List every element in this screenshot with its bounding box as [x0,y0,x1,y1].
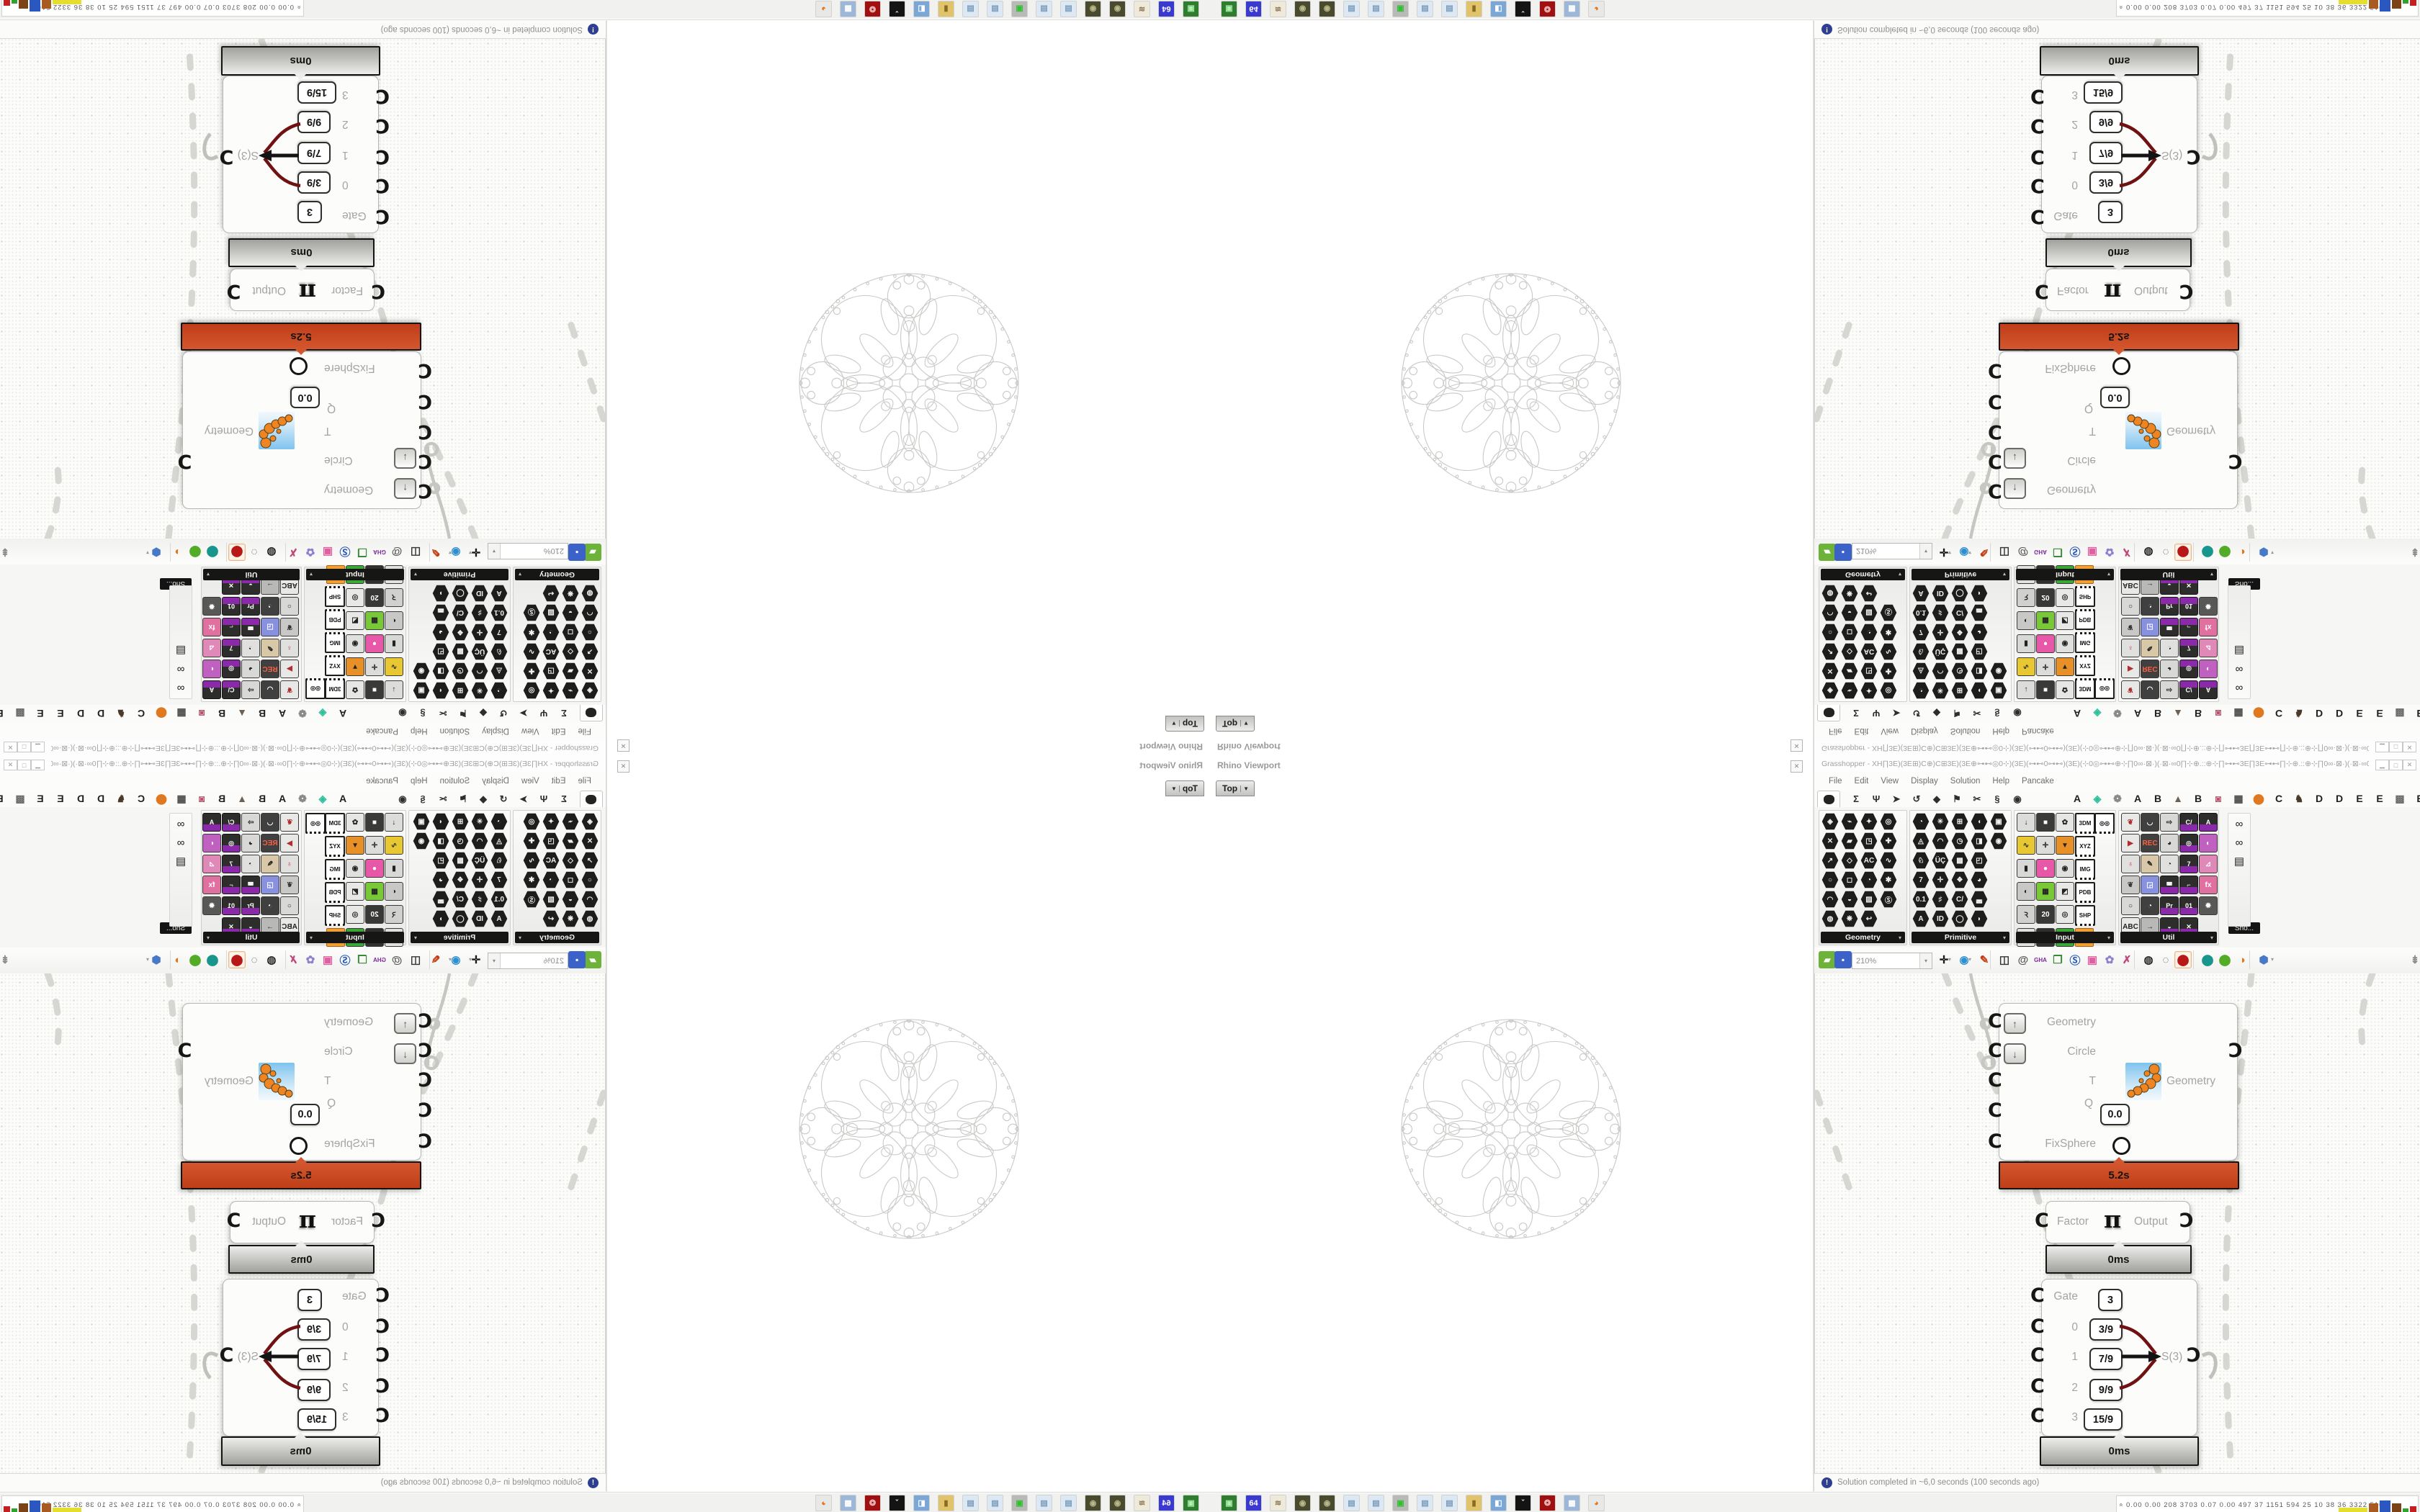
component-icon-geometry-0[interactable]: ◈ [1821,813,1839,830]
component-icon-util-23[interactable]: 01 [222,896,241,915]
selected-preview-button[interactable]: ⬢ [148,951,165,968]
component-icon-input-20[interactable]: Ꝛ [385,905,403,924]
system-monitor-widget[interactable]: « 0.00 0.00 208 3703 0.07 0.00 497 37 11… [1,1495,304,1512]
category-tab-icon-4[interactable]: ◆ [1928,706,1945,720]
component-icon-input-1[interactable]: ■ [365,680,384,699]
input-grip[interactable]: C [377,1317,390,1336]
output-grip[interactable]: Ɔ [2228,1041,2241,1061]
menu-item-view[interactable]: View [1881,726,1899,735]
input-grip[interactable]: C [2030,1377,2043,1396]
menu-item-display[interactable]: Display [482,777,509,786]
component-icon-geometry-17[interactable]: ◒ [562,891,579,908]
component-icon-primitive-3[interactable]: ◖ [432,813,449,830]
component-icon-geometry-2[interactable]: ✦ [1860,682,1878,699]
tab-params-selected[interactable] [580,791,603,808]
component-icon-primitive-22[interactable]: C/ [1951,604,1968,621]
component-icon-util-9[interactable]: ◐ [202,660,221,678]
node-canvas[interactable]: ↑ ↓ Geometry Circle T Q FixSphere [1814,973,2420,1473]
component-icon-geometry-21[interactable]: ❋ [1841,585,1858,602]
component-icon-primitive-27[interactable]: ◯ [452,910,469,927]
maximize-button[interactable]: □ [2389,742,2403,752]
component-icon-primitive-3[interactable]: ◖ [432,682,449,699]
component-icon-primitive-6[interactable]: ◠ [471,662,488,680]
plugin-tab-4[interactable]: B [253,706,272,721]
app-medallion[interactable]: ◉ [1319,1495,1335,1511]
component-icon-geometry-2[interactable]: ✦ [542,813,560,830]
component-icon-input-21[interactable]: 20 [2036,588,2055,607]
component-icon-input-8[interactable]: XYZ [325,836,345,857]
component-icon-input-4[interactable]: ◎◎ [2094,813,2115,834]
node-stream-gate[interactable]: Gate 3 0 3/9 1 7/9 2 9/9 3 15/9 [2041,1279,2197,1436]
component-icon-primitive-5[interactable]: ◬ [1912,832,1930,850]
component-icon-input-7[interactable]: ▼ [346,657,364,676]
plugin-tab-15[interactable]: E [31,791,50,806]
zoom-level-combo[interactable]: 210%▾ [1852,953,1932,969]
jump-wires-button[interactable]: ✗ [284,544,302,561]
component-icon-input-5[interactable]: ∿ [2017,836,2035,855]
component-icon-primitive-13[interactable]: ◰ [432,643,449,660]
component-icon-primitive-5[interactable]: ◬ [1912,662,1930,680]
component-icon-input-16[interactable]: ▦ [365,882,384,901]
fancy-wires-button[interactable]: ◑ [2233,544,2251,561]
chevron-down-icon[interactable]: ▼ [1240,721,1251,727]
component-icon-primitive-13[interactable]: ◰ [1971,852,1988,869]
component-icon-util-12[interactable]: ◔ [241,639,260,657]
component-icon-util-19[interactable]: fx [202,876,221,894]
component-icon-geometry-12[interactable]: ○ [581,871,599,888]
menu-item-help[interactable]: Help [411,777,428,786]
component-icon-geometry-7[interactable]: ✚ [523,832,540,850]
component-icon-input-23[interactable]: SHP [2075,586,2095,607]
component-icon-util-11[interactable]: ✎ [2141,855,2159,873]
component-icon-primitive-27[interactable]: ◯ [452,585,469,602]
component-icon-geometry-13[interactable]: ◻ [562,871,579,888]
app-flash-64[interactable]: 64 [1158,1,1175,17]
only-selected-preview-button[interactable]: ⬤ [204,544,221,561]
component-icon-util-6[interactable]: REC [261,660,279,678]
component-icon-geometry-4[interactable]: ✕ [581,662,599,680]
component-icon-primitive-25[interactable]: A [490,585,508,602]
preview-off-button[interactable]: ◍ [263,544,280,561]
component-icon-primitive-25[interactable]: A [490,910,508,927]
chevron-down-icon[interactable]: ▾ [146,549,149,556]
plugin-tab-12[interactable]: D [91,706,110,721]
component-icon-primitive-1[interactable]: ✳ [1932,682,1949,699]
component-icon-util-24[interactable]: ✹ [2199,896,2218,915]
input-grip[interactable]: C [1988,1101,2001,1120]
menu-item-help[interactable]: Help [411,726,428,735]
component-icon-geometry-15[interactable]: ✱ [523,624,540,641]
plugin-tab-9[interactable]: ⬤ [152,706,171,721]
node-pi-factor[interactable]: Factor π Output [2045,269,2190,311]
menu-item-edit[interactable]: Edit [1855,726,1869,735]
component-icon-input-8[interactable]: XYZ [2075,836,2095,857]
component-icon-primitive-1[interactable]: ✳ [1932,813,1949,830]
plugin-tab-1[interactable]: ◈ [313,791,332,806]
component-icon-geometry-5[interactable]: ▰ [1841,662,1858,680]
app-phone[interactable]: ▮ [1466,1,1482,17]
plugin-tab-9[interactable]: ⬤ [2249,706,2268,721]
menu-item-file[interactable]: File [1829,777,1842,786]
maximize-button[interactable]: □ [17,742,31,752]
component-icon-primitive-2[interactable]: ⊞ [1951,813,1968,830]
minimize-button[interactable]: ▁ [31,760,45,770]
app-phone[interactable]: ▮ [938,1,954,17]
component-icon-geometry-8[interactable]: ↗ [1821,643,1839,660]
category-tab-icon-2[interactable]: ➤ [515,706,532,720]
gate-row-value[interactable]: 7/9 [297,142,331,164]
gate-row-value[interactable]: 9/9 [297,1379,331,1401]
component-icon-primitive-12[interactable]: ▩ [452,643,469,660]
strip-icon-2[interactable]: ▤ [2234,855,2244,868]
app-notepad[interactable]: ▤ [962,1,979,17]
component-icon-primitive-16[interactable]: ✛ [471,624,488,641]
component-icon-input-8[interactable]: XYZ [2075,655,2095,676]
save-document-button[interactable]: ▪ [568,951,586,968]
gha-assembly-button[interactable]: GHA [371,544,388,561]
fancy-wires-button[interactable]: ◑ [169,951,187,968]
component-icon-primitive-5[interactable]: ◬ [490,832,508,850]
app-remote-desktop[interactable]: ▣ [1011,1,1028,17]
save-document-button[interactable]: ▪ [1834,544,1852,561]
maximize-button[interactable]: □ [17,760,31,770]
component-icon-input-6[interactable]: ✛ [365,657,384,676]
menu-item-solution[interactable]: Solution [1950,726,1981,735]
plugin-tab-14[interactable]: E [51,706,70,721]
group-label-bar[interactable]: Util▾ [2120,932,2217,943]
component-icon-input-7[interactable]: ▼ [2056,657,2074,676]
component-icon-primitive-20[interactable]: 0.1 [1912,891,1930,908]
menu-item-display[interactable]: Display [1911,726,1938,735]
component-icon-geometry-8[interactable]: ↗ [581,643,599,660]
component-icon-geometry-4[interactable]: ✕ [1821,832,1839,850]
component-icon-geometry-15[interactable]: ✱ [1880,871,1897,888]
group-label-bar[interactable]: Util▾ [203,932,300,943]
plugin-tab-12[interactable]: D [91,791,110,806]
obscure-components-button[interactable]: ◫ [407,951,424,968]
group-label-bar[interactable]: Primitive▾ [411,569,508,580]
strip-icon-0[interactable]: ∞ [177,681,185,694]
component-icon-util-15[interactable]: ❦ [2121,618,2140,636]
component-icon-primitive-2[interactable]: ⊞ [1951,682,1968,699]
output-grip[interactable]: Ɔ [2179,1211,2192,1230]
preview-wireframe-button[interactable]: ◌ [246,544,263,561]
component-icon-geometry-5[interactable]: ▰ [562,832,579,850]
component-icon-geometry-12[interactable]: ○ [581,624,599,641]
obscure-components-button[interactable]: ◫ [407,544,424,561]
component-icon-util-16[interactable]: ◲ [2141,618,2159,636]
plugin-tab-7[interactable]: ◙ [192,791,211,806]
app-remote-desktop[interactable]: ▣ [1392,1,1409,17]
component-icon-geometry-12[interactable]: ○ [1821,624,1839,641]
component-icon-util-4[interactable]: A [202,680,221,699]
node-stream-gate[interactable]: Gate 3 0 3/9 1 7/9 2 9/9 3 15/9 [223,1279,379,1436]
app-medallion[interactable]: ◉ [1109,1495,1126,1511]
component-icon-geometry-4[interactable]: ✕ [1821,662,1839,680]
component-icon-geometry-1[interactable]: ⌁ [562,813,579,830]
component-icon-geometry-15[interactable]: ✱ [523,871,540,888]
app-green-monitor[interactable]: ▣ [1183,1495,1199,1511]
component-icon-primitive-27[interactable]: ◯ [1951,585,1968,602]
category-tab-icon-5[interactable]: ⚑ [1948,706,1966,720]
menu-item-file[interactable]: File [578,726,591,735]
component-icon-input-0[interactable]: ↓ [2017,813,2035,832]
app-notepad[interactable]: ▤ [1441,1495,1458,1511]
component-icon-geometry-14[interactable]: ◔ [1860,871,1878,888]
component-icon-util-11[interactable]: ✎ [261,639,279,657]
component-icon-primitive-16[interactable]: ✛ [1932,871,1949,888]
component-icon-util-3[interactable]: C/ [2179,813,2198,832]
fixsphere-toggle[interactable] [290,357,308,375]
output-grip[interactable]: Ɔ [179,1041,192,1061]
component-icon-util-2[interactable]: ⇨ [241,813,260,832]
component-icon-geometry-5[interactable]: ▰ [1841,832,1858,850]
component-icon-primitive-0[interactable]: ◔ [1912,813,1930,830]
tab-params-selected[interactable] [1817,791,1840,808]
internalise-data-button[interactable]: @ [2015,544,2032,561]
component-icon-primitive-0[interactable]: ◔ [490,813,508,830]
component-icon-primitive-8[interactable]: ◨ [1971,662,1988,680]
category-tab-icon-4[interactable]: ◆ [1928,792,1945,806]
component-icon-input-5[interactable]: ∿ [385,836,403,855]
app-notepad[interactable]: ▤ [962,1495,979,1511]
cluster-package-button[interactable]: ▣ [319,544,336,561]
app-remote-desktop[interactable]: ▣ [1011,1495,1028,1511]
component-icon-geometry-15[interactable]: ✱ [1880,624,1897,641]
component-icon-primitive-11[interactable]: ÜÇ [1932,852,1949,869]
plugin-tab-10[interactable]: C [2269,791,2288,806]
component-icon-primitive-7[interactable]: ◷ [452,662,469,680]
component-icon-input-4[interactable]: ◎◎ [305,813,326,834]
plugin-tab-13[interactable]: D [2330,706,2349,721]
node-circle-pack[interactable]: ↑ ↓ Geometry Circle T Q FixSphere [1999,1003,2238,1161]
component-icon-geometry-3[interactable]: ◎ [523,813,540,830]
jump-wires-button[interactable]: ✗ [2118,544,2136,561]
component-icon-geometry-10[interactable]: AC [542,852,560,869]
component-icon-input-22[interactable]: ◎ [346,588,364,607]
maximize-button[interactable]: □ [2389,760,2403,770]
input-grip[interactable]: C [377,1346,390,1365]
category-tab-icon-7[interactable]: § [1989,792,2006,806]
component-icon-primitive-20[interactable]: 0.1 [490,604,508,621]
component-icon-geometry-22[interactable]: ↩ [1860,910,1878,927]
component-icon-primitive-12[interactable]: ▩ [1951,852,1968,869]
component-icon-input-23[interactable]: SHP [2075,905,2095,926]
chevron-down-icon[interactable]: ▾ [1968,549,1971,556]
component-icon-input-12[interactable]: ◉ [2056,634,2074,653]
chevron-down-icon[interactable]: ▾ [2271,956,2274,963]
plugin-tab-1[interactable]: ◈ [313,706,332,721]
menu-item-view[interactable]: View [521,777,539,786]
app-flash-64[interactable]: 64 [1245,1495,1262,1511]
plugin-tab-9[interactable]: ⬤ [2249,791,2268,806]
component-icon-util-17[interactable]: ◚ [241,618,260,636]
plugin-tab-16[interactable]: ▩ [11,706,30,721]
chevron-down-icon[interactable]: ▾ [1919,953,1932,968]
component-icon-geometry-2[interactable]: ✦ [542,682,560,699]
gate-value-box[interactable]: 3 [2098,201,2123,223]
component-icon-primitive-26[interactable]: ID [471,585,488,602]
component-icon-input-10[interactable]: ▮ [2017,634,2035,653]
category-tab-icon-5[interactable]: ⚑ [454,706,472,720]
plugin-tab-0[interactable]: A [2068,791,2087,806]
fixsphere-toggle[interactable] [2112,357,2130,375]
component-icon-geometry-6[interactable]: ◳ [1860,832,1878,850]
app-red-seal[interactable]: ❂ [1539,1495,1556,1511]
tab-params-selected[interactable] [1817,704,1840,721]
component-icon-util-13[interactable]: 7 [2179,855,2198,873]
app-red-seal[interactable]: ❂ [1539,1,1556,17]
toolbar-overflow-button[interactable]: ⇟ [2406,951,2420,968]
plugin-tab-6[interactable]: B [212,706,231,721]
node-pi-factor[interactable]: Factor π Output [2045,1201,2190,1243]
input-grip[interactable]: C [2030,86,2043,106]
jump-wires-button[interactable]: ✗ [2118,951,2136,968]
component-icon-primitive-21[interactable]: ♯ [1932,604,1949,621]
component-icon-input-13[interactable]: IMG [2075,632,2095,653]
component-icon-primitive-17[interactable]: ❖ [1951,871,1968,888]
component-icon-geometry-9[interactable]: ◇ [562,852,579,869]
component-icon-geometry-3[interactable]: ◎ [1880,813,1897,830]
component-icon-input-10[interactable]: ▮ [385,859,403,878]
input-grip[interactable]: C [377,1377,390,1396]
component-icon-primitive-1[interactable]: ✳ [471,813,488,830]
component-icon-util-5[interactable]: ▶ [280,660,299,678]
component-icon-input-7[interactable]: ▼ [346,836,364,855]
component-icon-util-3[interactable]: C/ [222,813,241,832]
gate-row-value[interactable]: 15/9 [2084,1408,2123,1431]
system-monitor-widget[interactable]: « 0.00 0.00 208 3703 0.07 0.00 497 37 11… [1,0,304,17]
component-icon-util-17[interactable]: ◚ [241,876,260,894]
menu-item-pancake[interactable]: Pancake [366,777,398,786]
component-icon-geometry-6[interactable]: ◳ [542,832,560,850]
toolbar-overflow-button[interactable]: ⇟ [2406,544,2420,561]
component-icon-primitive-22[interactable]: C/ [452,891,469,908]
component-icon-primitive-23[interactable]: ◛ [1971,604,1988,621]
app-firefox[interactable]: ◕ [1588,1,1605,17]
menu-item-edit[interactable]: Edit [552,726,566,735]
input-grip[interactable]: C [1988,451,2001,471]
plugin-tab-5[interactable]: ▲ [233,791,251,806]
node-pi-factor[interactable]: Factor π Output [230,1201,375,1243]
menu-item-solution[interactable]: Solution [440,726,470,735]
node-stream-gate[interactable]: Gate 3 0 3/9 1 7/9 2 9/9 3 15/9 [223,76,379,233]
component-icon-geometry-6[interactable]: ◳ [1860,662,1878,680]
close-icon[interactable]: ✕ [617,760,629,773]
component-icon-util-15[interactable]: ❦ [280,876,299,894]
zoom-level-combo[interactable]: 210%▾ [488,953,568,969]
plugin-tab-16[interactable]: ▩ [2390,706,2409,721]
component-icon-util-22[interactable]: Pr [2160,896,2179,915]
component-icon-util-2[interactable]: ⇨ [241,680,260,699]
app-mask[interactable]: ˇ [1515,1495,1531,1511]
node-circle-pack[interactable]: ↑ ↓ Geometry Circle T Q FixSphere [182,351,421,509]
app-notepad[interactable]: ▤ [1036,1,1052,17]
component-icon-util-3[interactable]: C/ [222,680,241,699]
component-icon-geometry-5[interactable]: ▰ [562,662,579,680]
component-icon-primitive-15[interactable]: 7 [490,871,508,888]
component-icon-util-18[interactable]: ⌐ [222,618,241,636]
component-icon-primitive-15[interactable]: 7 [1912,871,1930,888]
app-calculator[interactable]: ▦ [1564,1495,1580,1511]
component-icon-util-7[interactable]: ◕ [241,834,260,852]
component-icon-util-23[interactable]: 01 [2179,597,2198,616]
grasshopper-titlebar[interactable]: Grasshopper - XH∏3E)(3E⊞)C⊕)C⊞3E)(3E⊕⊶⊷◎… [0,756,606,772]
jump-wires-button[interactable]: ✗ [284,951,302,968]
component-icon-input-3[interactable]: 3DM [325,678,345,699]
group-label-bar[interactable]: Util▾ [2120,569,2217,580]
component-icon-primitive-23[interactable]: ◛ [432,604,449,621]
gate-value-box[interactable]: 3 [297,201,322,223]
component-icon-util-9[interactable]: ◐ [2199,834,2218,852]
plugin-tab-3[interactable]: A [273,706,292,721]
component-icon-primitive-4[interactable]: ▣ [413,682,430,699]
plugin-tab-2[interactable]: ❁ [2108,706,2127,721]
quick-image-button[interactable]: ❐ [2049,544,2066,561]
component-icon-util-0[interactable]: ❦ [280,680,299,699]
chevron-down-icon[interactable]: ▾ [1948,956,1951,963]
find-button[interactable]: Ⓢ [2066,544,2084,561]
app-medallion[interactable]: ◉ [1109,1,1126,17]
strip-icon-0[interactable]: ∞ [2236,818,2244,831]
chevron-down-icon[interactable]: ▾ [469,549,472,556]
galapagos-button[interactable]: ✿ [302,951,319,968]
component-icon-geometry-1[interactable]: ⌁ [1841,813,1858,830]
component-icon-util-4[interactable]: A [202,813,221,832]
app-firefox[interactable]: ◕ [815,1495,832,1511]
component-icon-util-6[interactable]: REC [2141,660,2159,678]
plugin-tab-14[interactable]: E [2350,706,2369,721]
gate-row-value[interactable]: 7/9 [297,1348,331,1370]
input-grip[interactable]: C [2030,207,2043,226]
draw-icons-button[interactable]: ⬤ [2216,544,2233,561]
category-tab-icon-1[interactable]: Ψ [1868,792,1885,806]
app-green-monitor[interactable]: ▣ [1221,1495,1237,1511]
component-icon-geometry-3[interactable]: ◎ [1880,682,1897,699]
component-icon-primitive-18[interactable]: ◕ [432,871,449,888]
gha-assembly-button[interactable]: GHA [371,951,388,968]
plugin-tab-7[interactable]: ◙ [192,706,211,721]
component-icon-geometry-22[interactable]: ↩ [542,585,560,602]
component-icon-geometry-22[interactable]: ↩ [1860,585,1878,602]
component-icon-primitive-13[interactable]: ◰ [1971,643,1988,660]
component-icon-input-15[interactable]: ◐ [385,882,403,901]
component-icon-geometry-16[interactable]: ◠ [581,604,599,621]
component-icon-util-24[interactable]: ✹ [202,896,221,915]
app-notepad[interactable]: ▤ [1343,1495,1360,1511]
component-icon-primitive-6[interactable]: ◠ [1932,662,1949,680]
component-icon-util-20[interactable]: ○ [280,896,299,915]
component-icon-input-18[interactable]: PDB [325,882,345,903]
component-icon-util-8[interactable]: ◎ [2179,834,2198,852]
component-icon-input-15[interactable]: ◐ [2017,611,2035,630]
component-icon-primitive-25[interactable]: A [1912,910,1930,927]
fixsphere-toggle[interactable] [2112,1137,2130,1155]
app-scroll[interactable]: ≋ [1134,1,1150,17]
component-icon-geometry-0[interactable]: ◈ [1821,682,1839,699]
q-value-box[interactable]: 0.0 [2100,387,2130,408]
plugin-tab-5[interactable]: ▲ [2169,791,2187,806]
component-icon-input-4[interactable]: ◎◎ [2094,678,2115,699]
component-icon-util-11[interactable]: ✎ [261,855,279,873]
plugin-tab-0[interactable]: A [2068,706,2087,721]
category-tab-icon-8[interactable]: ◉ [2009,706,2026,720]
close-button[interactable]: ✕ [2403,760,2416,770]
component-icon-input-0[interactable]: ↓ [385,813,403,832]
component-icon-input-1[interactable]: ■ [2036,813,2055,832]
component-icon-input-11[interactable]: ● [365,859,384,878]
fancy-wires-button[interactable]: ◑ [2233,951,2251,968]
